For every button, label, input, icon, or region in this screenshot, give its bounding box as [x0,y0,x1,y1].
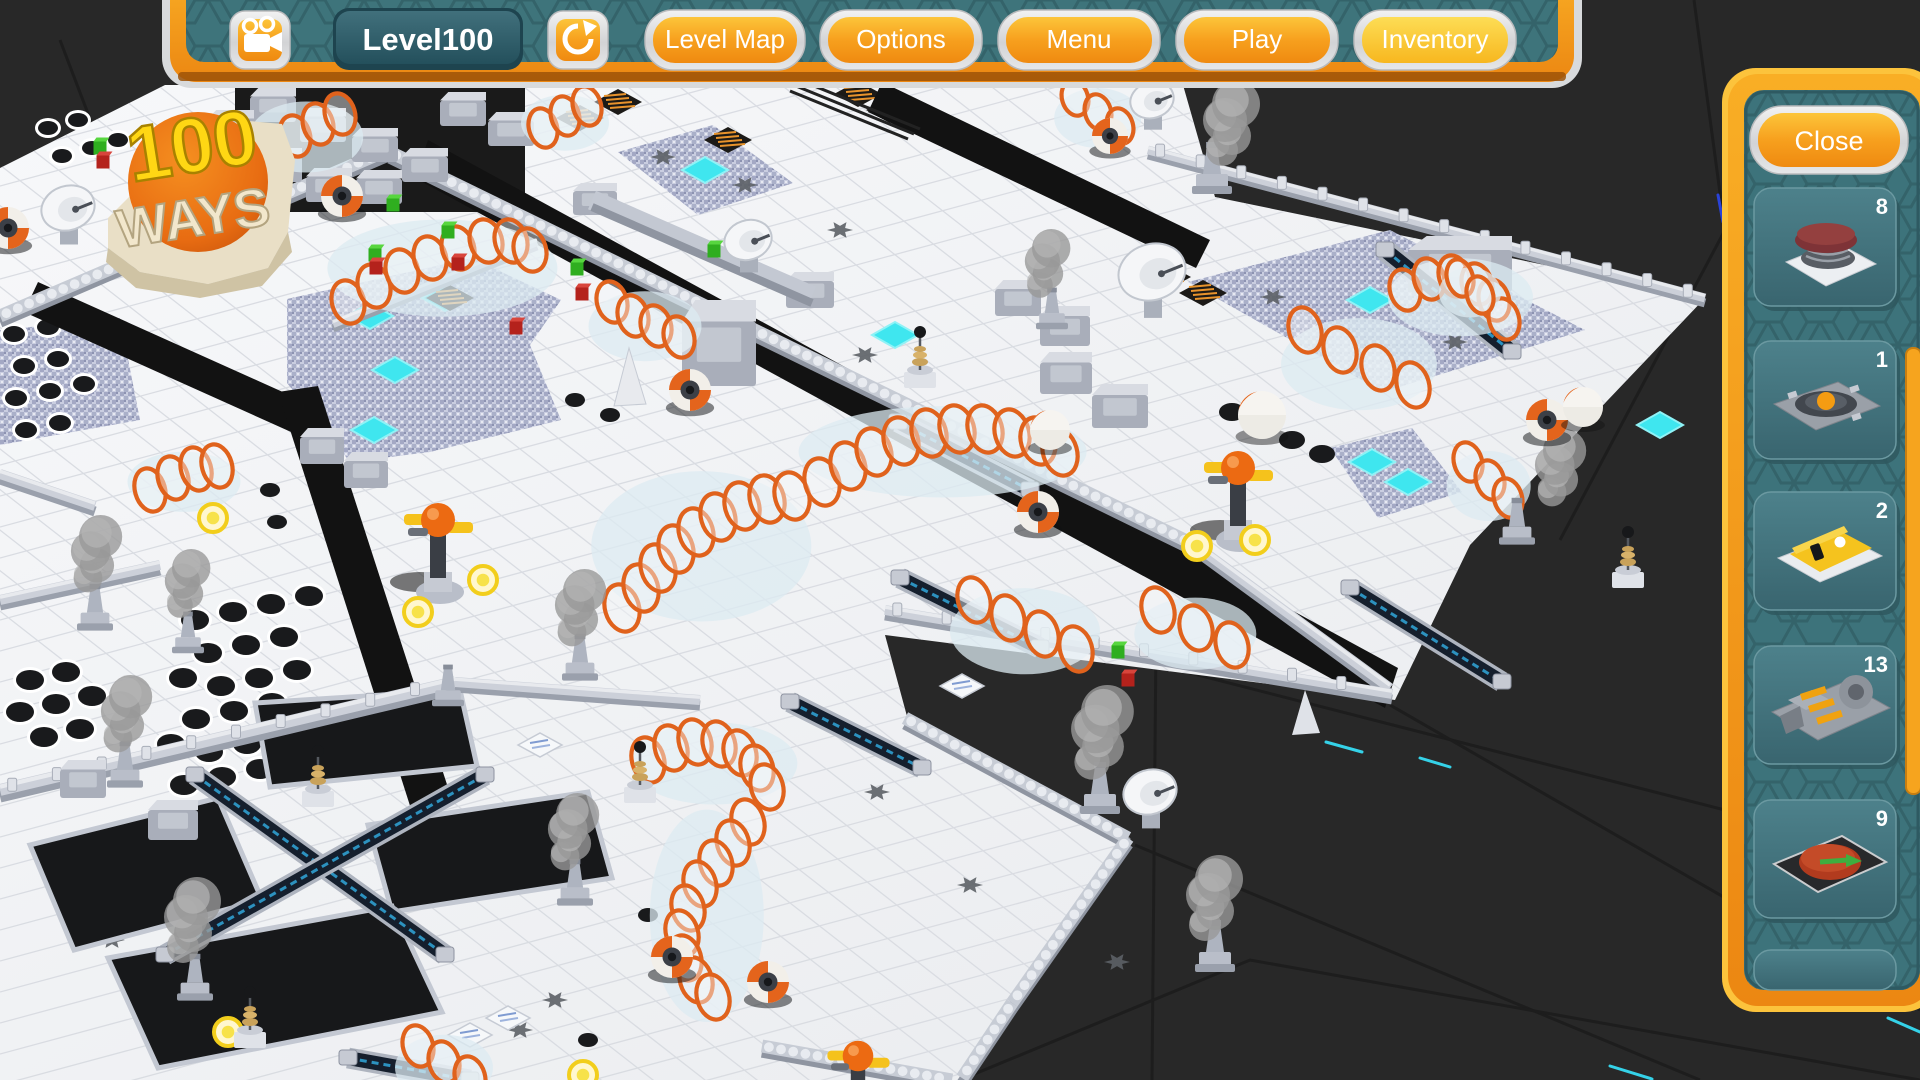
svg-text:13: 13 [1864,652,1888,677]
svg-text:Options: Options [856,24,946,54]
svg-text:Level Map: Level Map [665,24,785,54]
svg-text:1: 1 [1876,347,1888,372]
svg-text:Level100: Level100 [363,22,494,57]
svg-text:9: 9 [1876,806,1888,831]
svg-text:Menu: Menu [1046,24,1111,54]
svg-text:2: 2 [1876,498,1888,523]
svg-text:Play: Play [1232,24,1283,54]
svg-text:Inventory: Inventory [1382,24,1489,54]
svg-text:Close: Close [1794,126,1863,156]
svg-text:8: 8 [1876,194,1888,219]
